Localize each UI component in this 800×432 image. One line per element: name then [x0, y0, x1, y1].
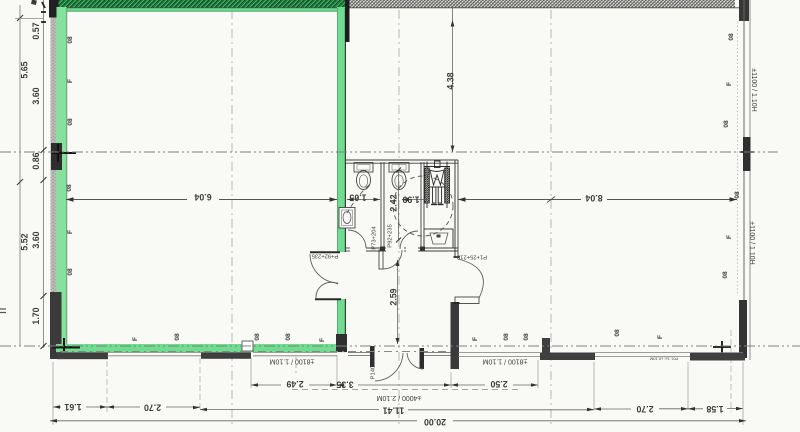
svg-text:08: 08 — [728, 33, 735, 41]
svg-text:2.42: 2.42 — [388, 194, 398, 211]
svg-text:08: 08 — [66, 184, 73, 192]
svg-text:08: 08 — [285, 333, 292, 341]
svg-text:08: 08 — [723, 120, 730, 128]
svg-text:6.04: 6.04 — [194, 192, 211, 202]
svg-text:3.60: 3.60 — [31, 87, 41, 104]
svg-text:0.57: 0.57 — [31, 22, 41, 39]
svg-text:11.41: 11.41 — [383, 406, 405, 416]
svg-text:2.70: 2.70 — [636, 404, 653, 414]
svg-text:P+92+235: P+92+235 — [312, 252, 339, 258]
svg-text:2.70: 2.70 — [144, 403, 161, 413]
svg-text:P01 1a: ±0.10M: P01 1a: ±0.10M — [650, 356, 678, 361]
svg-text:0.86: 0.86 — [31, 152, 41, 169]
svg-text:08: 08 — [614, 329, 621, 337]
svg-text:F: F — [726, 82, 733, 86]
svg-text:4.38: 4.38 — [445, 72, 455, 89]
svg-text:1.99: 1.99 — [402, 195, 419, 205]
svg-text:2.59: 2.59 — [388, 288, 398, 305]
svg-text:1.61: 1.61 — [64, 402, 81, 412]
svg-text:08: 08 — [67, 268, 74, 276]
svg-text:±8100 / 1.10M: ±8100 / 1.10M — [482, 358, 527, 365]
svg-text:P73+204: P73+204 — [372, 226, 378, 250]
svg-text:±4000 / 2.10M: ±4000 / 2.10M — [376, 394, 421, 401]
svg-text:F: F — [67, 79, 74, 83]
svg-text:08: 08 — [67, 36, 74, 44]
svg-text:F: F — [472, 337, 479, 341]
svg-text:1.05: 1.05 — [349, 193, 366, 203]
svg-text:F: F — [67, 230, 74, 234]
svg-text:2.50: 2.50 — [490, 379, 507, 389]
svg-text:20.00: 20.00 — [424, 417, 446, 427]
svg-text:P92+235: P92+235 — [388, 224, 394, 247]
svg-text:±1100 / 1.10H: ±1100 / 1.10H — [750, 68, 757, 111]
svg-text:08: 08 — [254, 333, 261, 341]
svg-text:3.60: 3.60 — [31, 231, 41, 248]
svg-text:1.58: 1.58 — [706, 404, 723, 414]
svg-text:5.52: 5.52 — [19, 233, 29, 250]
svg-text:±1100 / 1.10H: ±1100 / 1.10H — [748, 221, 755, 264]
svg-text:3.35: 3.35 — [336, 380, 353, 390]
svg-text:8.04: 8.04 — [585, 193, 602, 203]
svg-text:08: 08 — [174, 333, 181, 341]
svg-text:2.49: 2.49 — [286, 379, 303, 389]
svg-text:P140+210: P140+210 — [371, 353, 377, 380]
svg-text:08: 08 — [503, 333, 510, 341]
svg-text:F: F — [726, 235, 733, 239]
svg-text:±8100 / 1.10M: ±8100 / 1.10M — [269, 358, 314, 365]
svg-text:5.65: 5.65 — [19, 61, 29, 78]
svg-text:P1+25+218: P1+25+218 — [457, 253, 487, 259]
svg-text:F: F — [319, 338, 326, 342]
svg-text:08: 08 — [734, 191, 741, 199]
svg-text:08: 08 — [722, 271, 729, 279]
svg-text:08: 08 — [67, 118, 74, 126]
svg-text:F: F — [132, 337, 139, 341]
svg-text:08: 08 — [523, 333, 530, 341]
svg-text:F: F — [657, 335, 664, 339]
svg-text:1.70: 1.70 — [31, 307, 41, 324]
